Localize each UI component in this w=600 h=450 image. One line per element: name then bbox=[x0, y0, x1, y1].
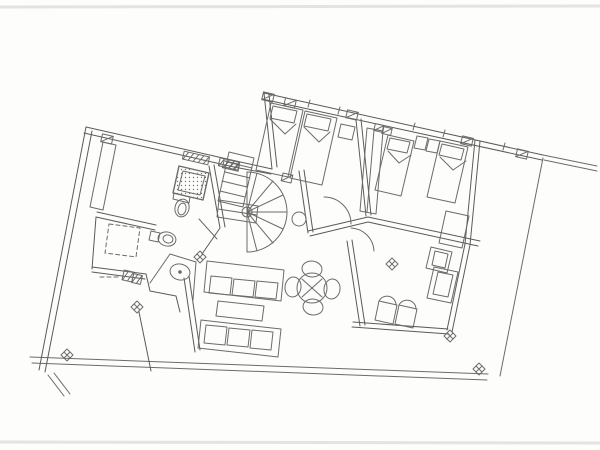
wall-wing-bottom-outer bbox=[308, 217, 480, 241]
bed-2-pillow bbox=[304, 114, 331, 131]
terrace-right-edge bbox=[500, 158, 543, 376]
stool-1-back bbox=[379, 296, 396, 305]
stair-tread-4 bbox=[220, 191, 245, 197]
sofa-1-seat-1 bbox=[209, 276, 232, 295]
wall-kitchen-left-a bbox=[347, 241, 360, 326]
wall-kitchen-left-b bbox=[352, 240, 365, 325]
stair-column bbox=[292, 212, 306, 226]
bed-2-fold-b bbox=[319, 132, 330, 142]
counter-1 bbox=[439, 211, 469, 248]
railing-top-b bbox=[544, 160, 597, 171]
sofa-1-outline bbox=[204, 261, 284, 301]
basin-drain bbox=[179, 271, 182, 274]
door-arc-kitchen bbox=[351, 228, 374, 251]
bed-4-pillow bbox=[439, 144, 464, 160]
nightstand-2 bbox=[414, 136, 428, 150]
boundary-sw-a bbox=[48, 375, 64, 396]
bed-3-pillow bbox=[387, 138, 410, 153]
stool-2-seat bbox=[395, 305, 417, 328]
scanned-floor-plan-page bbox=[0, 0, 600, 450]
bed-2-fold-a bbox=[304, 127, 319, 142]
bidet-bowl-inner bbox=[162, 234, 174, 244]
wall-partition-b bbox=[361, 119, 371, 215]
bed-1-pillow bbox=[270, 106, 297, 123]
closet-left bbox=[90, 142, 116, 210]
bed-4-outline bbox=[427, 141, 468, 203]
sofa-1-seat-3 bbox=[255, 281, 278, 299]
wardrobe-inner bbox=[367, 130, 374, 212]
sofa-2-seat-1 bbox=[204, 325, 227, 345]
door-arc-bedroom bbox=[324, 197, 351, 224]
wall-hatch-3-h1 bbox=[224, 159, 230, 168]
stair-tread-2 bbox=[225, 172, 250, 178]
wall-room2-top-a bbox=[97, 212, 156, 225]
nightstand-1 bbox=[338, 124, 355, 140]
wall-top-left-outer bbox=[86, 127, 236, 161]
wall-hatch-3-h2 bbox=[229, 160, 235, 169]
bed-4-fold-a bbox=[440, 157, 453, 170]
stair-radial-3 bbox=[247, 195, 283, 212]
wall-top-left-inner bbox=[84, 133, 234, 167]
floor-plan-svg bbox=[0, 0, 600, 450]
skylight-dashed bbox=[105, 224, 140, 257]
stool-2-back bbox=[399, 300, 416, 309]
page-edge-top bbox=[0, 6, 600, 7]
window-tick-2 bbox=[338, 107, 340, 114]
wall-bath-lower bbox=[146, 274, 180, 312]
coffee-table bbox=[216, 301, 264, 321]
wall-wing-bottom-inner bbox=[310, 222, 478, 246]
wall-hall-left-a bbox=[184, 278, 195, 352]
stair-tread-3 bbox=[222, 181, 247, 187]
nightstand-3 bbox=[426, 139, 440, 153]
wall-shower-right-a bbox=[209, 166, 220, 228]
bed-3-outline bbox=[375, 135, 414, 196]
floor-plan-layer bbox=[0, 6, 600, 443]
railing-top-a bbox=[543, 155, 597, 166]
sofa-2-seat-2 bbox=[227, 328, 250, 347]
bed-3-fold-a bbox=[388, 151, 399, 163]
wall-room2-top-b bbox=[96, 217, 155, 230]
sofa-1-seat-2 bbox=[232, 279, 255, 297]
page-edge-bottom bbox=[0, 442, 600, 443]
bed-1-fold-b bbox=[285, 124, 296, 134]
counter-sink bbox=[426, 247, 452, 273]
counter-sink-inner bbox=[432, 251, 448, 268]
wall-lowleft bbox=[139, 312, 151, 371]
wall-left-outer bbox=[39, 127, 86, 370]
wall-wing-top-outer bbox=[264, 93, 543, 155]
boundary-sw-b bbox=[54, 373, 70, 394]
wall-room2-left bbox=[92, 217, 96, 269]
sofa-2-seat-3 bbox=[250, 330, 273, 350]
wall-left-inner bbox=[45, 131, 92, 372]
counter-2-inner bbox=[433, 272, 453, 297]
wall-wing-top-inner bbox=[262, 99, 542, 160]
stool-1-seat bbox=[375, 301, 397, 324]
toilet-bowl-inner bbox=[177, 202, 187, 215]
